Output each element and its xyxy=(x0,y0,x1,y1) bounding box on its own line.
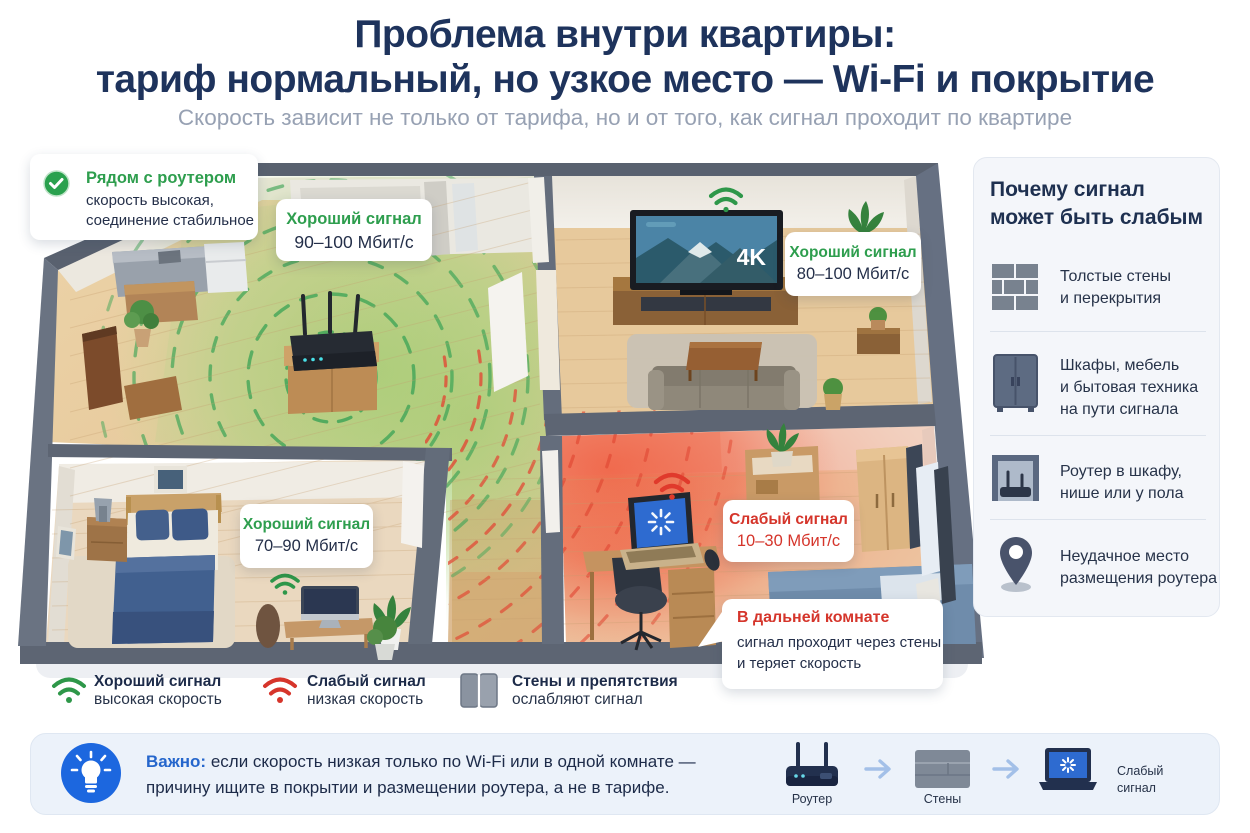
svg-text:4K: 4K xyxy=(737,244,767,270)
